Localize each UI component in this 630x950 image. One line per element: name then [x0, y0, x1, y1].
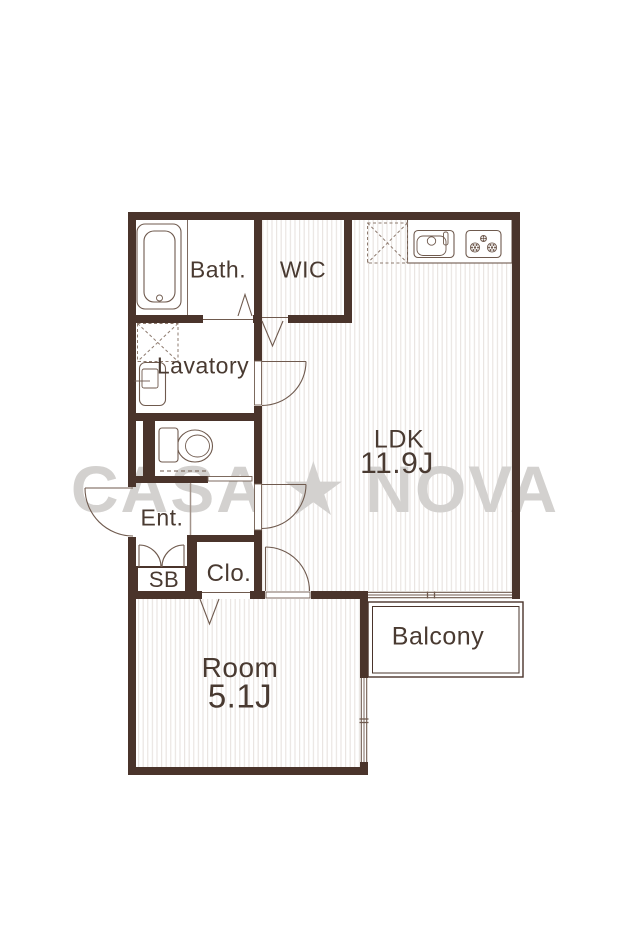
- toilet-icon: [159, 428, 213, 462]
- room-size-label: 5.1J: [208, 680, 272, 713]
- wic-label: WIC: [280, 259, 326, 282]
- entrance-label: Ent.: [141, 507, 184, 530]
- bathtub-icon: [137, 220, 188, 315]
- ldk-room-door-swing-icon: [266, 547, 311, 598]
- shoebox-label: SB: [149, 569, 179, 591]
- shoe-box-doors-icon: [139, 545, 184, 567]
- lavatory-door-swing-icon: [255, 361, 307, 406]
- floorplan: CASA ★ NOVA: [0, 0, 630, 950]
- bath-folding-door-icon: [203, 295, 253, 320]
- ldk-size-label: 11.9J: [360, 449, 434, 479]
- closet-label: Clo.: [207, 562, 252, 586]
- balcony-window-icon: [368, 592, 512, 599]
- kitchen-counter: [408, 219, 513, 263]
- entrance-door-swing-icon: [85, 488, 133, 536]
- wic-folding-door-icon: [262, 318, 288, 347]
- room-window-icon: [360, 678, 369, 762]
- structure-layer: [0, 0, 630, 950]
- bath-label: Bath.: [190, 259, 246, 282]
- refrigerator-space-icon: [368, 223, 408, 263]
- balcony-label: Balcony: [392, 625, 484, 650]
- hall-ldk-door-swing-icon: [255, 484, 307, 530]
- closet-folding-door-icon: [200, 593, 250, 625]
- walls: [128, 212, 520, 775]
- lavatory-label: Lavatory: [157, 355, 249, 378]
